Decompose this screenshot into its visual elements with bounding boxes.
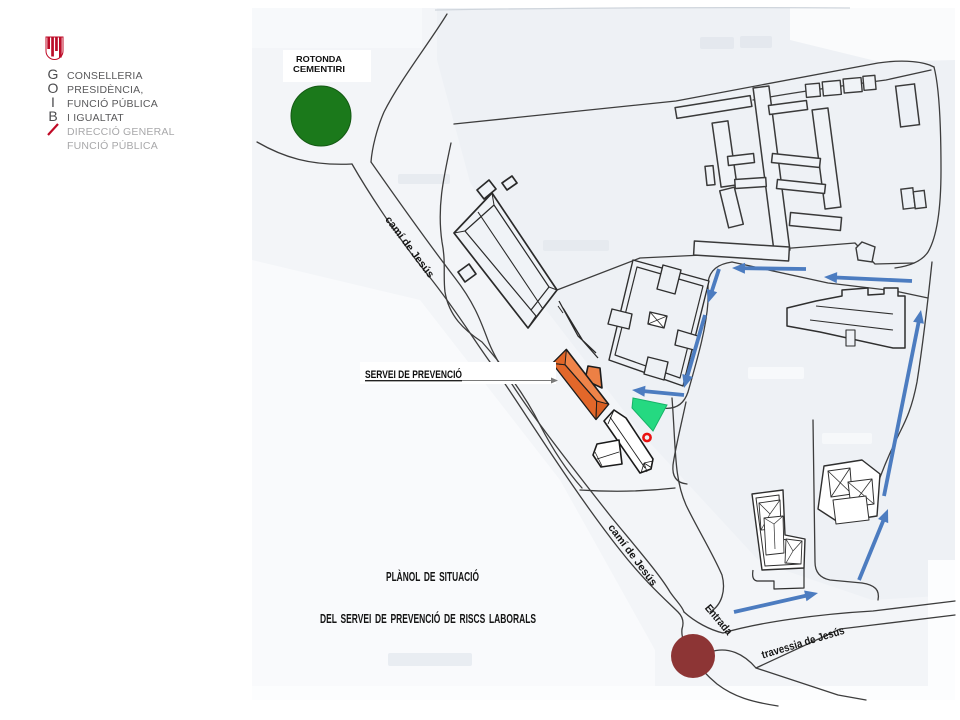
svg-text:CONSELLERIA: CONSELLERIA: [67, 70, 143, 82]
svg-text:SERVEI DE PREVENCIÓ: SERVEI DE PREVENCIÓ: [365, 368, 462, 381]
svg-text:FUNCIÓ PÚBLICA: FUNCIÓ PÚBLICA: [67, 139, 158, 152]
svg-text:DEL SERVEI DE PREVENCIÓ DE RIS: DEL SERVEI DE PREVENCIÓ DE RISCS LABORAL…: [320, 611, 536, 626]
svg-text:PLÀNOL DE SITUACIÓ: PLÀNOL DE SITUACIÓ: [386, 569, 479, 584]
svg-text:DIRECCIÓ GENERAL: DIRECCIÓ GENERAL: [67, 125, 175, 138]
svg-text:B: B: [48, 108, 57, 124]
svg-text:ROTONDA: ROTONDA: [296, 54, 342, 64]
svg-text:FUNCIÓ PÚBLICA: FUNCIÓ PÚBLICA: [67, 97, 158, 110]
svg-text:CEMENTIRI: CEMENTIRI: [293, 64, 345, 74]
svg-text:PRESIDÈNCIA,: PRESIDÈNCIA,: [67, 83, 144, 96]
svg-text:I IGUALTAT: I IGUALTAT: [67, 112, 124, 124]
